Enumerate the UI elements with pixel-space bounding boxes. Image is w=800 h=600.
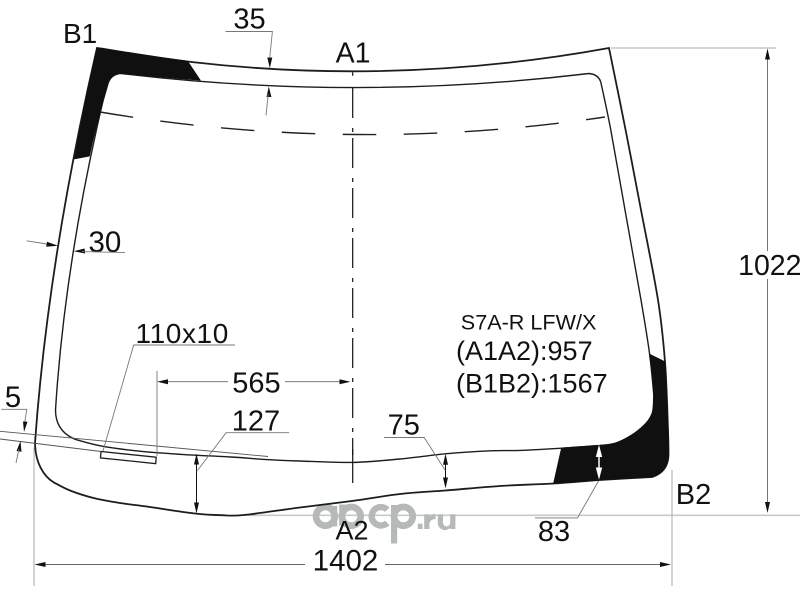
svg-text:30: 30 bbox=[89, 226, 122, 259]
svg-text:(B1B2):1567: (B1B2):1567 bbox=[456, 369, 608, 399]
svg-text:A1: A1 bbox=[336, 38, 371, 70]
svg-text:1402: 1402 bbox=[313, 545, 379, 578]
svg-text:B2: B2 bbox=[676, 479, 711, 511]
svg-text:B1: B1 bbox=[63, 18, 97, 49]
svg-text:110x10: 110x10 bbox=[136, 318, 229, 349]
svg-text:A2: A2 bbox=[335, 516, 368, 546]
svg-text:1022: 1022 bbox=[738, 250, 800, 282]
svg-text:83: 83 bbox=[538, 516, 570, 548]
svg-text:S7A-R LFW/X: S7A-R LFW/X bbox=[461, 310, 597, 335]
svg-text:(A1A2):957: (A1A2):957 bbox=[456, 336, 593, 366]
svg-text:35: 35 bbox=[233, 4, 265, 36]
svg-text:565: 565 bbox=[232, 368, 280, 400]
svg-text:75: 75 bbox=[388, 409, 420, 441]
